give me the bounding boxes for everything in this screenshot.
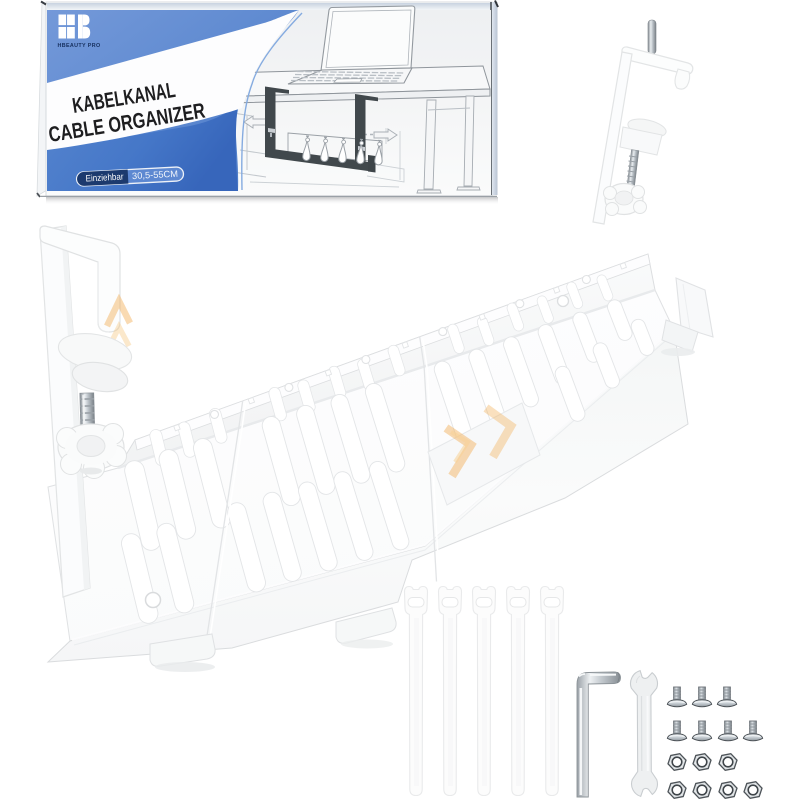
svg-text:Einziehbar: Einziehbar bbox=[85, 172, 123, 184]
svg-text:HBEAUTY PRO: HBEAUTY PRO bbox=[58, 43, 101, 49]
